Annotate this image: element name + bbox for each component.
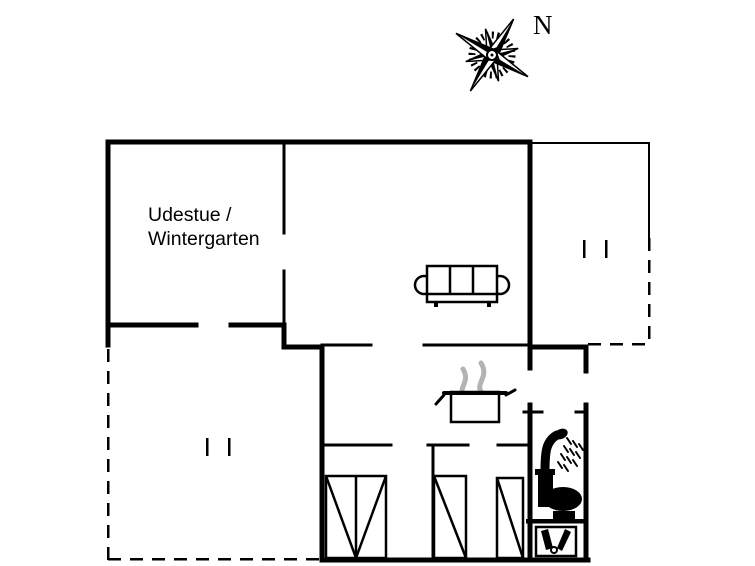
shower-spray — [558, 438, 583, 471]
room-label-line2: Wintergarten — [148, 228, 260, 250]
sink-icon — [536, 527, 576, 556]
compass-rose-icon — [451, 14, 533, 96]
annex-walls — [530, 143, 649, 238]
terrace-dashed-outline — [108, 349, 322, 560]
single-bed-icon-2 — [497, 478, 523, 558]
carport-dashed-outline — [588, 238, 649, 345]
opening-marks-terrace — [207, 438, 229, 456]
sofa-icon — [415, 266, 509, 307]
room-label-line1: Udestue / — [148, 204, 232, 226]
compass-north-label: N — [533, 10, 553, 40]
opening-marks-carport — [584, 240, 606, 258]
shower-icon — [545, 427, 583, 471]
floor-plan: N Udestue / Wintergarten — [0, 0, 755, 566]
floor-plan-canvas: N Udestue / Wintergarten — [0, 0, 755, 566]
toilet-icon — [535, 469, 582, 519]
cooking-pot-icon — [436, 390, 515, 422]
single-bed-icon-1 — [434, 476, 466, 558]
double-bed-icon — [326, 476, 386, 558]
